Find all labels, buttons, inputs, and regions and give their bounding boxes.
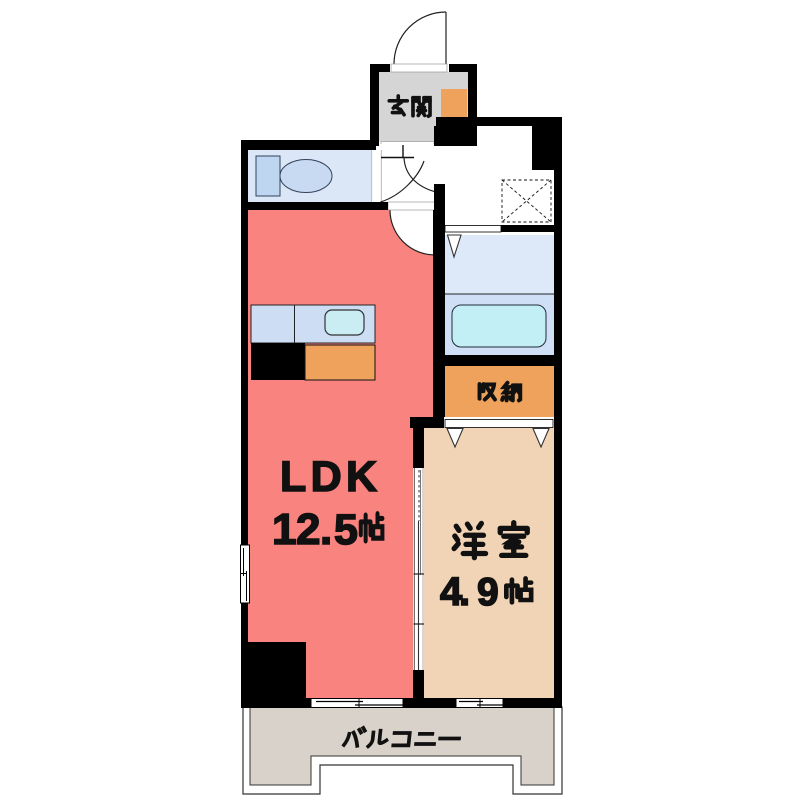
- svg-text:.: .: [320, 505, 332, 554]
- svg-text:5: 5: [334, 506, 358, 554]
- svg-text:LDK: LDK: [280, 453, 377, 501]
- svg-text:9: 9: [477, 571, 499, 614]
- svg-text:1: 1: [272, 505, 296, 554]
- svg-text:.: .: [459, 570, 470, 614]
- svg-text:2: 2: [296, 505, 320, 554]
